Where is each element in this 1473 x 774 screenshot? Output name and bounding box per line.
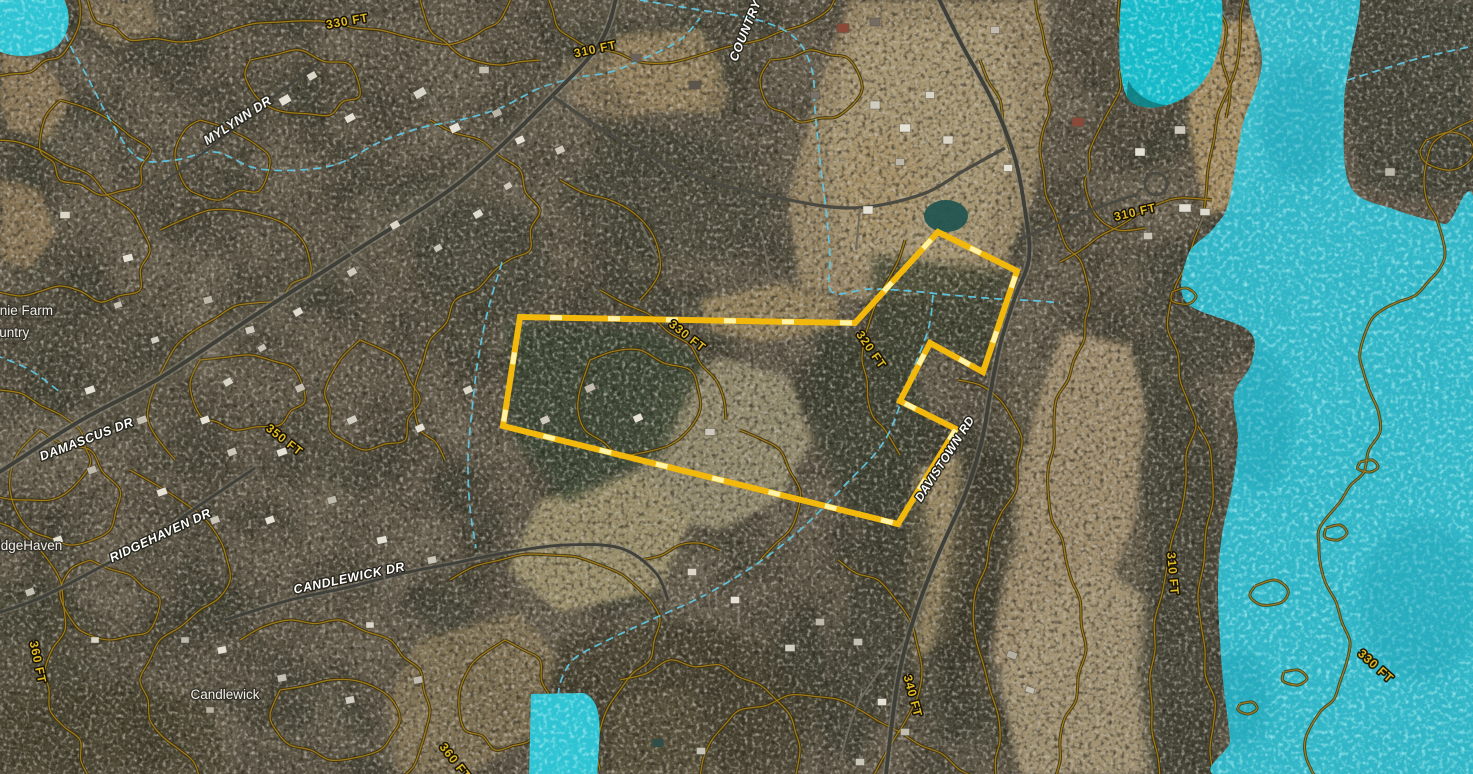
svg-text:Candlewick: Candlewick — [190, 687, 259, 702]
svg-text:Country: Country — [0, 325, 30, 340]
svg-text:Minnie Farm: Minnie Farm — [0, 303, 53, 318]
svg-text:RidgeHaven: RidgeHaven — [0, 538, 62, 553]
